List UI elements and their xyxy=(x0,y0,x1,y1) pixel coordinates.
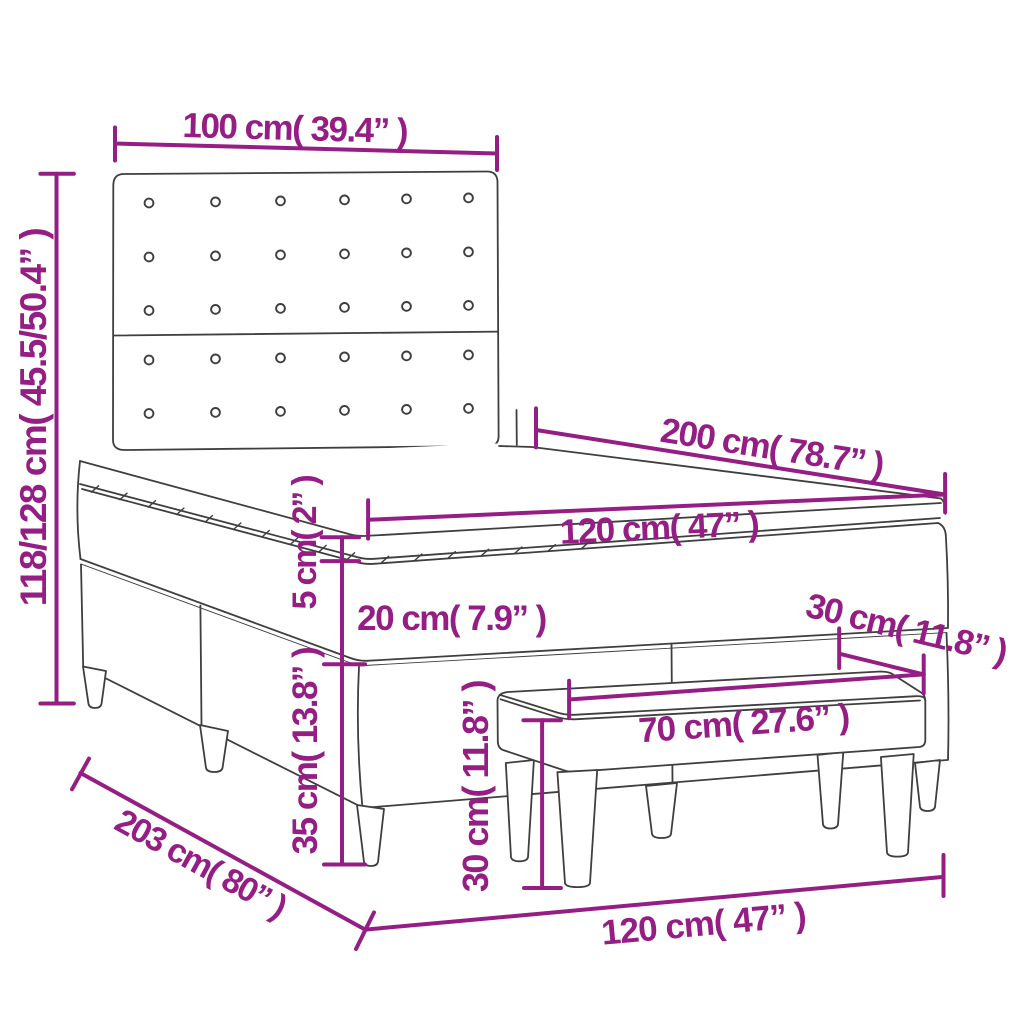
svg-text:5 cm( 2” ): 5 cm( 2” ) xyxy=(286,476,324,610)
svg-text:30 cm( 11.8” ): 30 cm( 11.8” ) xyxy=(455,681,496,893)
svg-text:35 cm( 13.8” ): 35 cm( 13.8” ) xyxy=(286,648,325,855)
svg-text:118/128 cm( 45.5/50.4” ): 118/128 cm( 45.5/50.4” ) xyxy=(13,229,54,607)
svg-text:20 cm( 7.9” ): 20 cm( 7.9” ) xyxy=(357,599,546,638)
svg-text:100 cm( 39.4” ): 100 cm( 39.4” ) xyxy=(182,106,408,151)
